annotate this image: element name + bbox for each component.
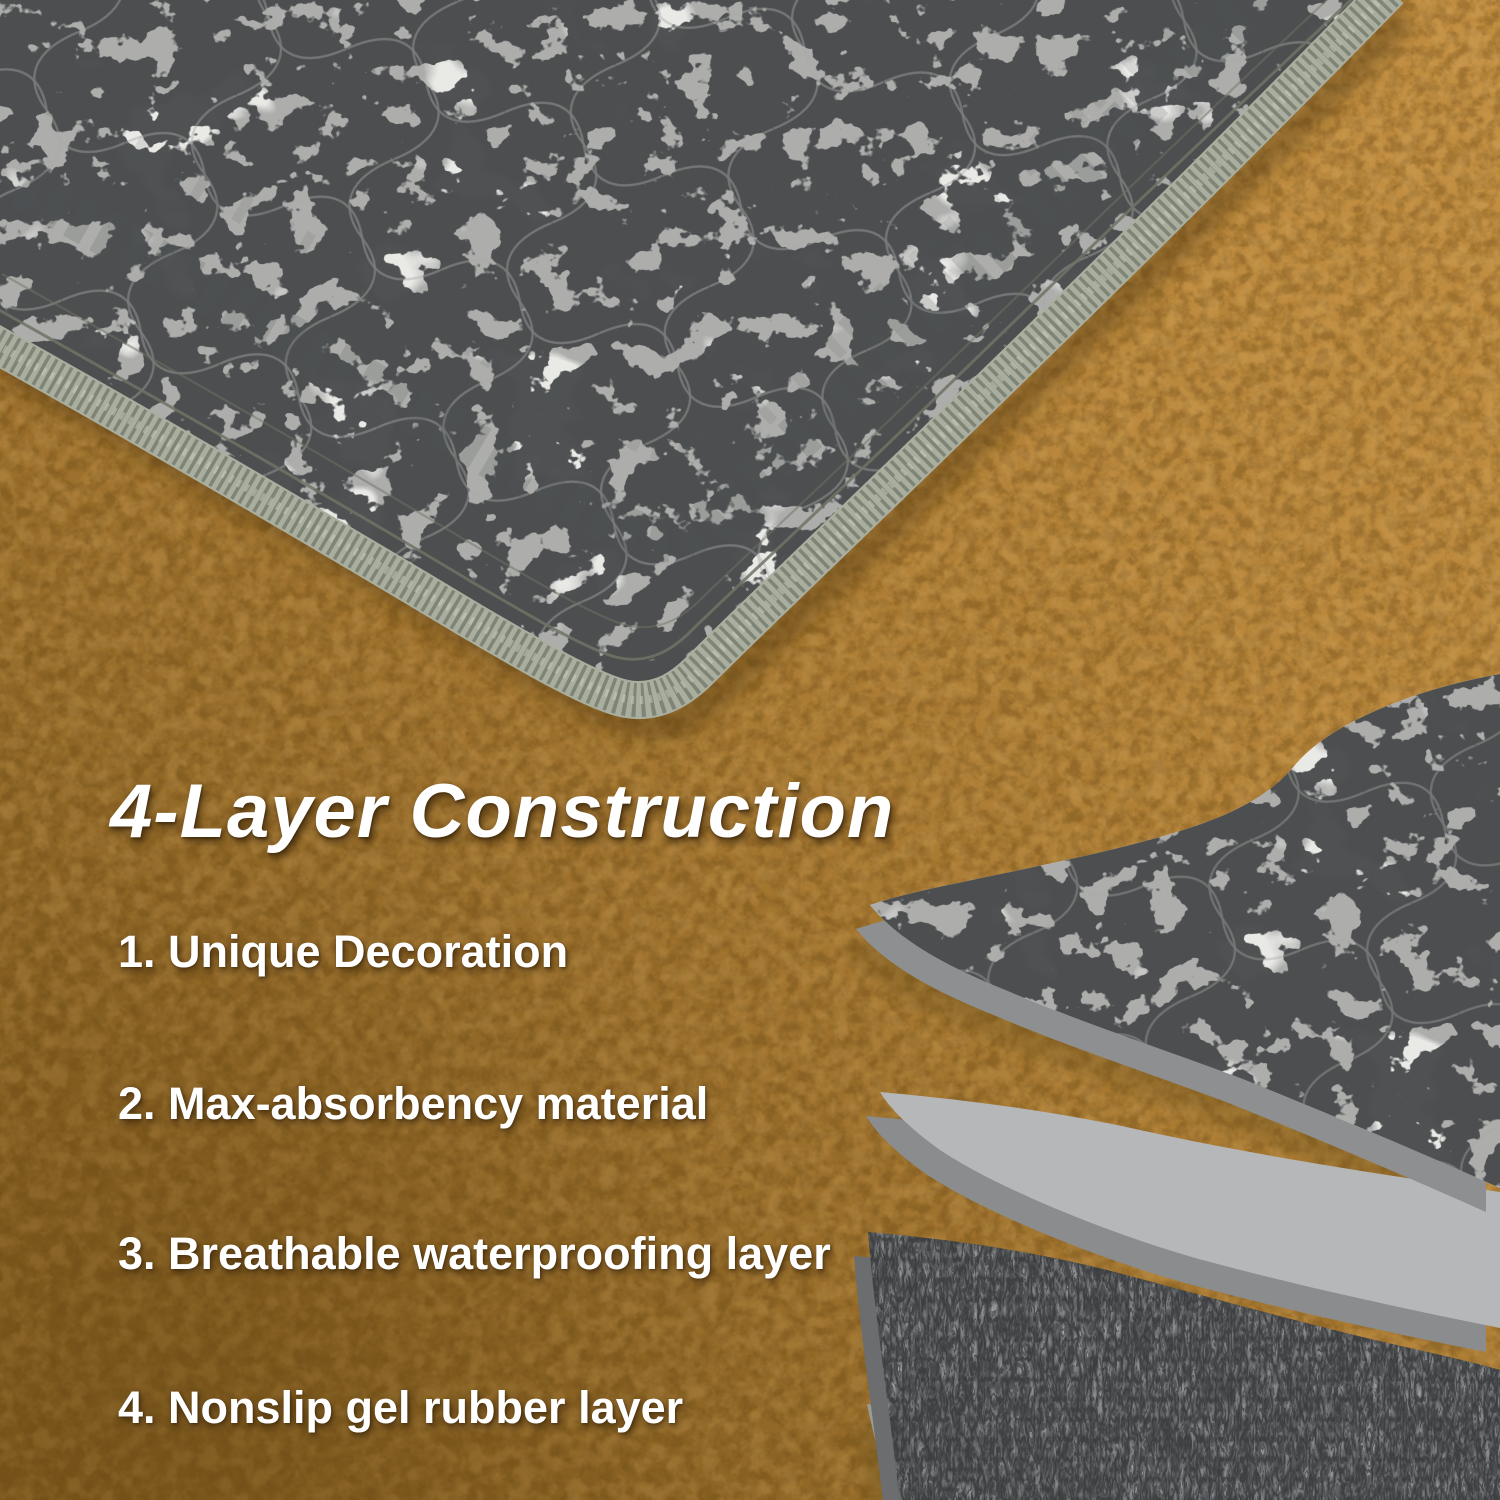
product-infographic: 4-Layer Construction 1. Unique Decoratio…	[0, 0, 1500, 1500]
construction-step-3: 3. Breathable waterproofing layer	[118, 1228, 831, 1280]
page-title: 4-Layer Construction	[110, 768, 894, 855]
construction-step-1: 1. Unique Decoration	[118, 926, 568, 978]
construction-step-4: 4. Nonslip gel rubber layer	[118, 1382, 683, 1434]
construction-step-2: 2. Max-absorbency material	[118, 1078, 708, 1130]
